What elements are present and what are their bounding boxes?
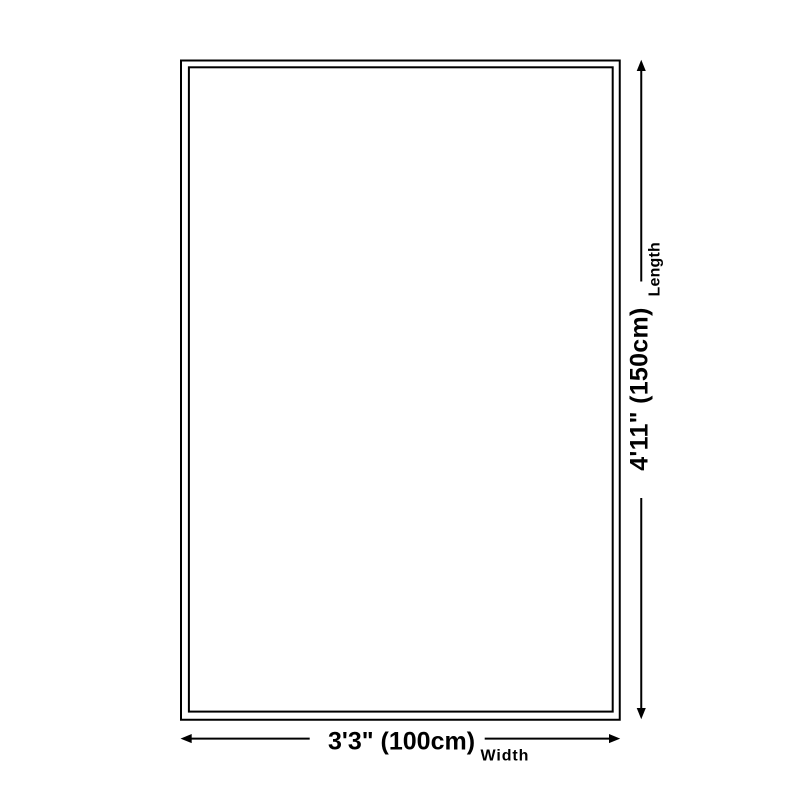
svg-text:Length: Length xyxy=(647,242,664,297)
svg-text:4'11" (150cm): 4'11" (150cm) xyxy=(626,307,654,470)
svg-text:Width: Width xyxy=(481,748,530,765)
svg-text:3'3" (100cm): 3'3" (100cm) xyxy=(328,728,475,756)
